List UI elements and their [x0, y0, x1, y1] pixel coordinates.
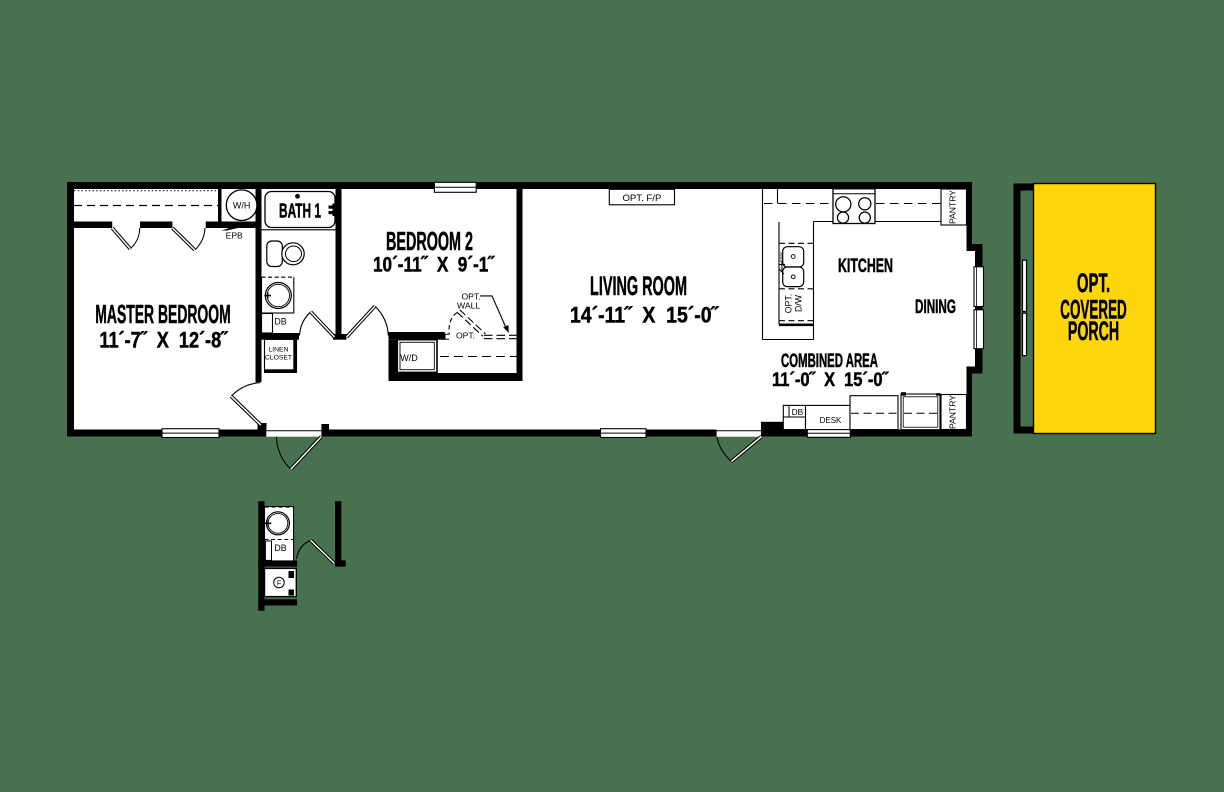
svg-text:KITCHEN: KITCHEN [838, 255, 893, 277]
svg-text:DB: DB [274, 543, 286, 553]
svg-text:PANTRY: PANTRY [948, 190, 958, 224]
svg-text:MASTER BEDROOM: MASTER BEDROOM [95, 299, 230, 329]
svg-text:OPT.: OPT. [456, 330, 475, 340]
svg-text:DB: DB [274, 317, 286, 327]
svg-text:PORCH: PORCH [1068, 316, 1119, 346]
svg-text:BATH 1: BATH 1 [279, 200, 321, 223]
svg-text:11´-7˝ X 12´-8˝: 11´-7˝ X 12´-8˝ [99, 328, 228, 353]
svg-text:BEDROOM 2: BEDROOM 2 [386, 226, 473, 256]
svg-text:LINEN: LINEN [268, 347, 288, 354]
svg-text:W/D: W/D [400, 353, 418, 363]
svg-text:W/H: W/H [233, 201, 251, 211]
svg-text:F: F [277, 580, 281, 587]
svg-text:CLOSET: CLOSET [265, 355, 292, 362]
svg-text:EPB: EPB [226, 231, 243, 241]
svg-text:DINING: DINING [915, 296, 956, 318]
svg-text:DB: DB [792, 407, 804, 417]
svg-text:LIVING ROOM: LIVING ROOM [590, 271, 687, 301]
svg-text:OPT.: OPT. [1077, 268, 1110, 298]
svg-text:D/W: D/W [794, 294, 804, 312]
svg-text:OPT. F/P: OPT. F/P [622, 193, 661, 204]
svg-text:COMBINED AREA: COMBINED AREA [781, 351, 878, 372]
svg-text:OPT.: OPT. [784, 294, 794, 314]
svg-text:10´-11˝ X 9´-1˝: 10´-11˝ X 9´-1˝ [373, 254, 495, 277]
svg-text:SINK: SINK [779, 252, 784, 262]
svg-text:WALL: WALL [457, 300, 480, 310]
svg-text:14´-11˝ X 15´-0˝: 14´-11˝ X 15´-0˝ [570, 303, 719, 328]
svg-text:PANTRY: PANTRY [948, 395, 958, 429]
svg-text:11´-0˝ X 15´-0˝: 11´-0˝ X 15´-0˝ [772, 370, 889, 391]
svg-text:DESK: DESK [820, 416, 842, 425]
